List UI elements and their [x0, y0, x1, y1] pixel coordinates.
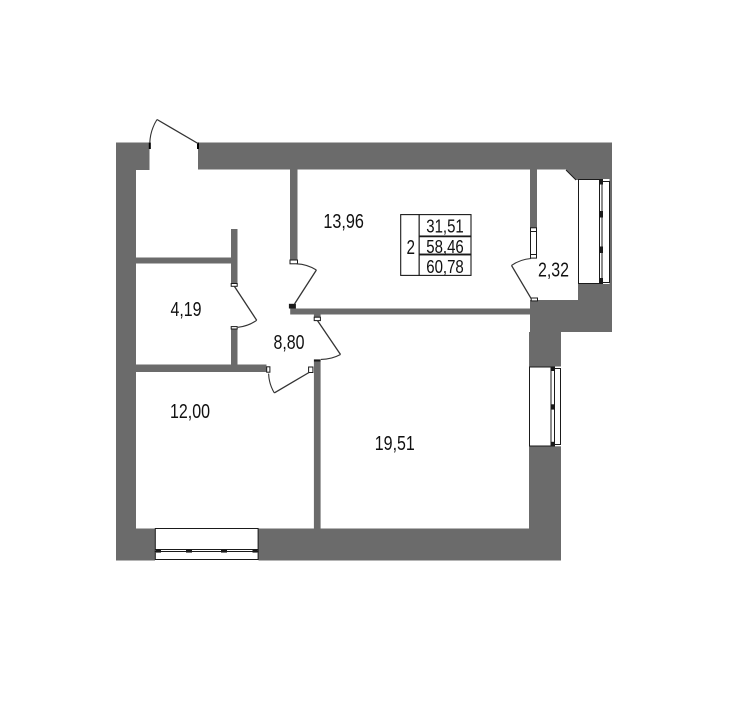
- svg-text:2: 2: [407, 237, 416, 259]
- svg-text:60,78: 60,78: [426, 257, 464, 277]
- svg-text:31,51: 31,51: [426, 217, 464, 237]
- svg-text:12,00: 12,00: [170, 401, 210, 423]
- svg-text:8,80: 8,80: [274, 332, 305, 354]
- svg-text:2,32: 2,32: [538, 260, 569, 282]
- svg-text:4,19: 4,19: [171, 299, 202, 321]
- svg-text:13,96: 13,96: [323, 211, 364, 233]
- svg-text:58,46: 58,46: [426, 237, 464, 257]
- svg-text:19,51: 19,51: [375, 433, 415, 455]
